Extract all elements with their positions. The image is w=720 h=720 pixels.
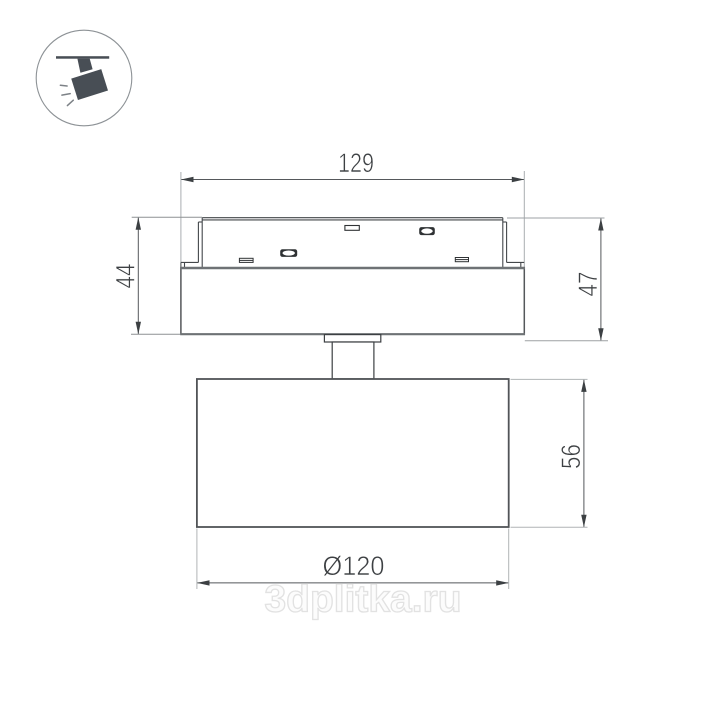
svg-text:56: 56 <box>556 444 586 469</box>
svg-text:47: 47 <box>573 272 603 297</box>
svg-text:129: 129 <box>338 148 374 178</box>
svg-text:Ø120: Ø120 <box>323 551 385 581</box>
svg-text:44: 44 <box>110 264 140 289</box>
svg-text:3dplitka.ru: 3dplitka.ru <box>265 579 462 621</box>
